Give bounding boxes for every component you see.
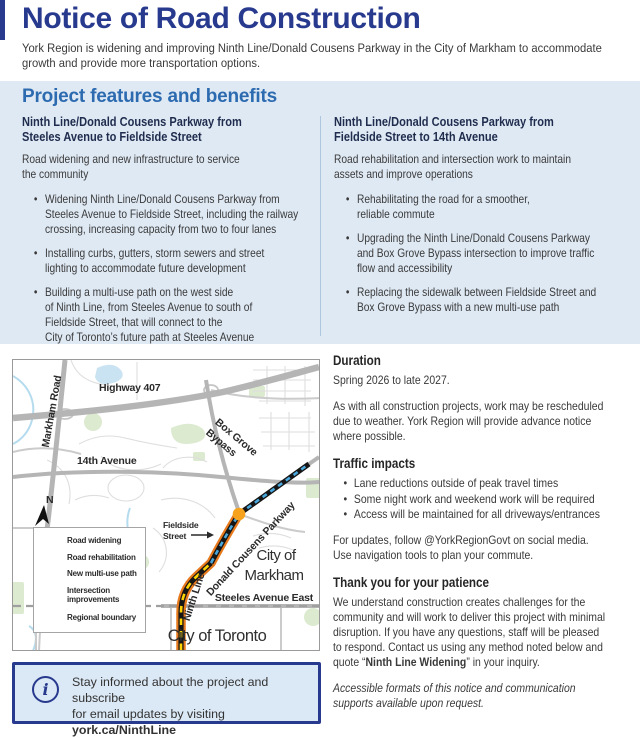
- multi-use-path-icon: [41, 569, 67, 571]
- accessible-formats-note: Accessible formats of this notice and co…: [333, 681, 627, 711]
- features-right-column: Ninth Line/Donald Cousens Parkway from F…: [334, 114, 630, 324]
- project-map: Highway 407 Markham Road 14th Avenue Box…: [12, 359, 320, 651]
- traffic-impacts-list: Lane reductions outside of peak travel t…: [333, 476, 627, 523]
- north-label: N: [46, 494, 53, 506]
- thanks-heading: Thank you for your patience: [333, 574, 627, 591]
- list-item: Installing curbs, gutters, storm sewers …: [22, 246, 318, 276]
- list-item: Upgrading the Ninth Line/Donald Cousens …: [334, 231, 630, 276]
- legend-row: Regional boundary: [41, 613, 140, 623]
- fieldside-pointer-arrowhead: [207, 532, 214, 539]
- bullet-text: Building a multi-use path on the west si…: [45, 285, 254, 345]
- bullet-text: Upgrading the Ninth Line/Donald Cousens …: [357, 231, 594, 276]
- intersection-dot-icon: [41, 586, 67, 606]
- bullet-text: Rehabilitating the road for a smoother, …: [357, 192, 530, 222]
- map-legend: Road widening Road rehabilitation New mu…: [33, 527, 146, 633]
- bullet-text: Replacing the sidewalk between Fieldside…: [357, 285, 596, 315]
- list-item: Rehabilitating the road for a smoother, …: [334, 192, 630, 222]
- map-label-highway-407: Highway 407: [99, 382, 161, 394]
- features-left-column: Ninth Line/Donald Cousens Parkway from S…: [22, 114, 318, 354]
- map-label-box-grove-bypass: Box Grove Bypass: [203, 416, 260, 469]
- legend-row: New multi-use path: [41, 569, 140, 579]
- info-icon: i: [32, 676, 59, 703]
- map-label-steeles-avenue-east: Steeles Avenue East: [215, 592, 314, 604]
- thanks-paragraph: We understand construction creates chall…: [333, 595, 627, 670]
- bullet-text: Installing curbs, gutters, storm sewers …: [45, 246, 264, 276]
- list-item: Access will be maintained for all drivew…: [333, 507, 627, 523]
- road-rehabilitation-icon: [41, 553, 67, 555]
- list-item: Building a multi-use path on the west si…: [22, 285, 318, 345]
- duration-dates: Spring 2026 to late 2027.: [333, 373, 627, 388]
- regional-boundary-icon: [41, 613, 67, 615]
- duration-note: As with all construction projects, work …: [333, 399, 627, 444]
- right-column-subheading: Road rehabilitation and intersection wor…: [334, 152, 630, 182]
- updates-note: For updates, follow @YorkRegionGovt on s…: [333, 533, 627, 563]
- section-title: Project features and benefits: [22, 86, 277, 108]
- road-widening-icon: [41, 536, 67, 538]
- list-item: Widening Ninth Line/Donald Cousens Parkw…: [22, 192, 318, 237]
- stay-informed-box: i Stay informed about the project and su…: [12, 662, 321, 724]
- map-label-fieldside-street: Fieldside: [163, 520, 199, 530]
- legend-row: Road widening: [41, 536, 140, 546]
- info-text: Stay informed about the project and subs…: [72, 674, 310, 738]
- right-column-heading: Ninth Line/Donald Cousens Parkway from F…: [334, 114, 630, 144]
- traffic-impacts-heading: Traffic impacts: [333, 455, 627, 472]
- list-item: Lane reductions outside of peak travel t…: [333, 476, 627, 492]
- map-label-14th-avenue: 14th Avenue: [77, 455, 137, 467]
- project-url-link[interactable]: york.ca/NinthLine: [72, 723, 176, 737]
- map-label-city-of-toronto: City of Toronto: [168, 627, 267, 645]
- left-column-subheading: Road widening and new infrastructure to …: [22, 152, 318, 182]
- title-accent-bar: [0, 0, 5, 40]
- left-column-heading: Ninth Line/Donald Cousens Parkway from S…: [22, 114, 318, 144]
- project-quote-name: Ninth Line Widening: [366, 655, 467, 669]
- page-title: Notice of Road Construction: [22, 2, 421, 36]
- duration-heading: Duration: [333, 352, 627, 369]
- intro-text: York Region is widening and improving Ni…: [22, 41, 620, 71]
- legend-row: Intersection improvements: [41, 586, 140, 606]
- intersection-improvement-dot: [233, 508, 246, 521]
- svg-text:Markham: Markham: [244, 567, 303, 584]
- column-divider: [320, 116, 321, 336]
- legend-row: Road rehabilitation: [41, 553, 140, 563]
- svg-text:Street: Street: [163, 531, 186, 541]
- list-item: Some night work and weekend work will be…: [333, 492, 627, 508]
- bullet-text: Widening Ninth Line/Donald Cousens Parkw…: [45, 192, 298, 237]
- map-label-city-of-markham: City of: [256, 547, 296, 564]
- list-item: Replacing the sidewalk between Fieldside…: [334, 285, 630, 315]
- details-column: Duration Spring 2026 to late 2027. As wi…: [333, 352, 627, 722]
